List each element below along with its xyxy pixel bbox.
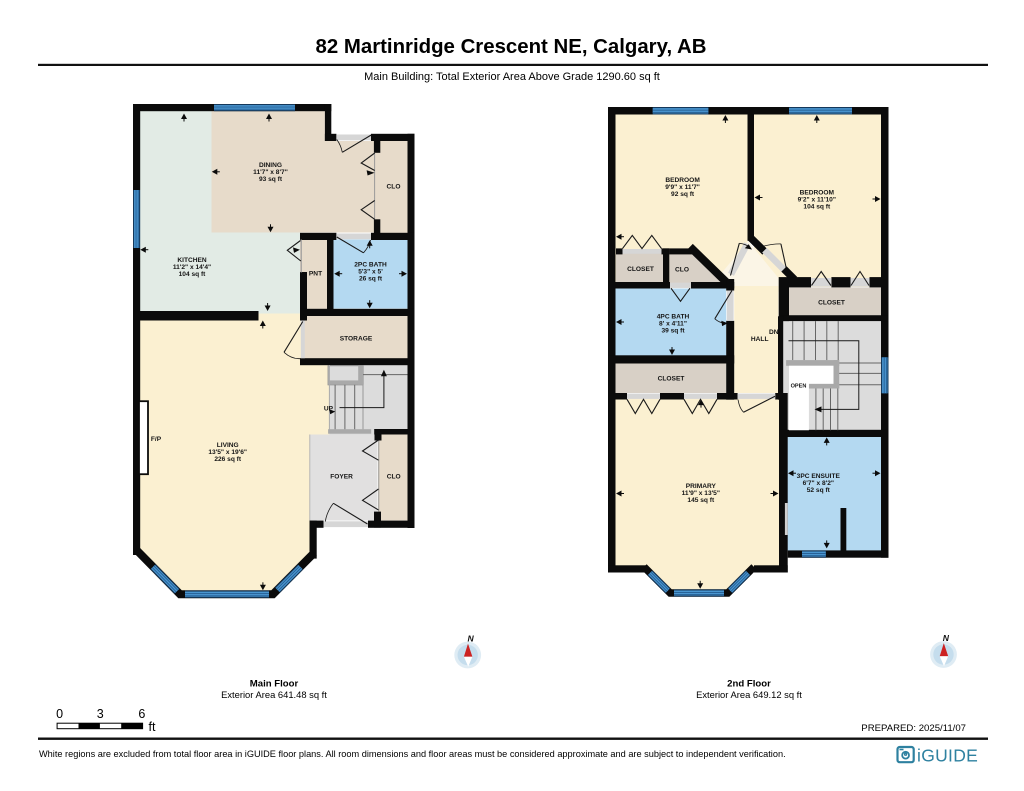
svg-text:3: 3 <box>97 707 104 721</box>
svg-text:0: 0 <box>56 707 63 721</box>
svg-text:iGUIDE: iGUIDE <box>917 746 978 766</box>
svg-text:White regions are excluded fro: White regions are excluded from total fl… <box>39 749 786 759</box>
svg-text:CLO: CLO <box>387 474 401 481</box>
svg-text:82 Martinridge Crescent NE, Ca: 82 Martinridge Crescent NE, Calgary, AB <box>316 36 707 58</box>
svg-text:CLO: CLO <box>387 184 401 191</box>
svg-text:FOYER: FOYER <box>330 474 353 481</box>
svg-text:STORAGE: STORAGE <box>340 336 373 343</box>
svg-text:DN: DN <box>769 329 779 336</box>
svg-text:CLOSET: CLOSET <box>658 376 685 383</box>
svg-text:Main Building: Total Exterior: Main Building: Total Exterior Area Above… <box>364 71 660 83</box>
svg-text:PNT: PNT <box>309 271 322 278</box>
svg-text:CLOSET: CLOSET <box>627 266 654 273</box>
svg-text:Exterior Area 641.48 sq ft: Exterior Area 641.48 sq ft <box>221 689 327 700</box>
svg-text:CLOSET: CLOSET <box>818 300 845 307</box>
svg-text:F/P: F/P <box>151 436 162 443</box>
svg-text:PREPARED: 2025/11/07: PREPARED: 2025/11/07 <box>861 723 966 734</box>
svg-text:HALL: HALL <box>751 336 769 343</box>
svg-text:OPEN: OPEN <box>791 383 807 389</box>
svg-text:CLO: CLO <box>675 267 689 274</box>
svg-text:ft: ft <box>149 720 156 734</box>
svg-text:Main Floor: Main Floor <box>250 679 299 690</box>
svg-text:Exterior Area 649.12 sq ft: Exterior Area 649.12 sq ft <box>696 689 802 700</box>
svg-text:6: 6 <box>138 707 145 721</box>
svg-text:2nd Floor: 2nd Floor <box>727 679 771 690</box>
